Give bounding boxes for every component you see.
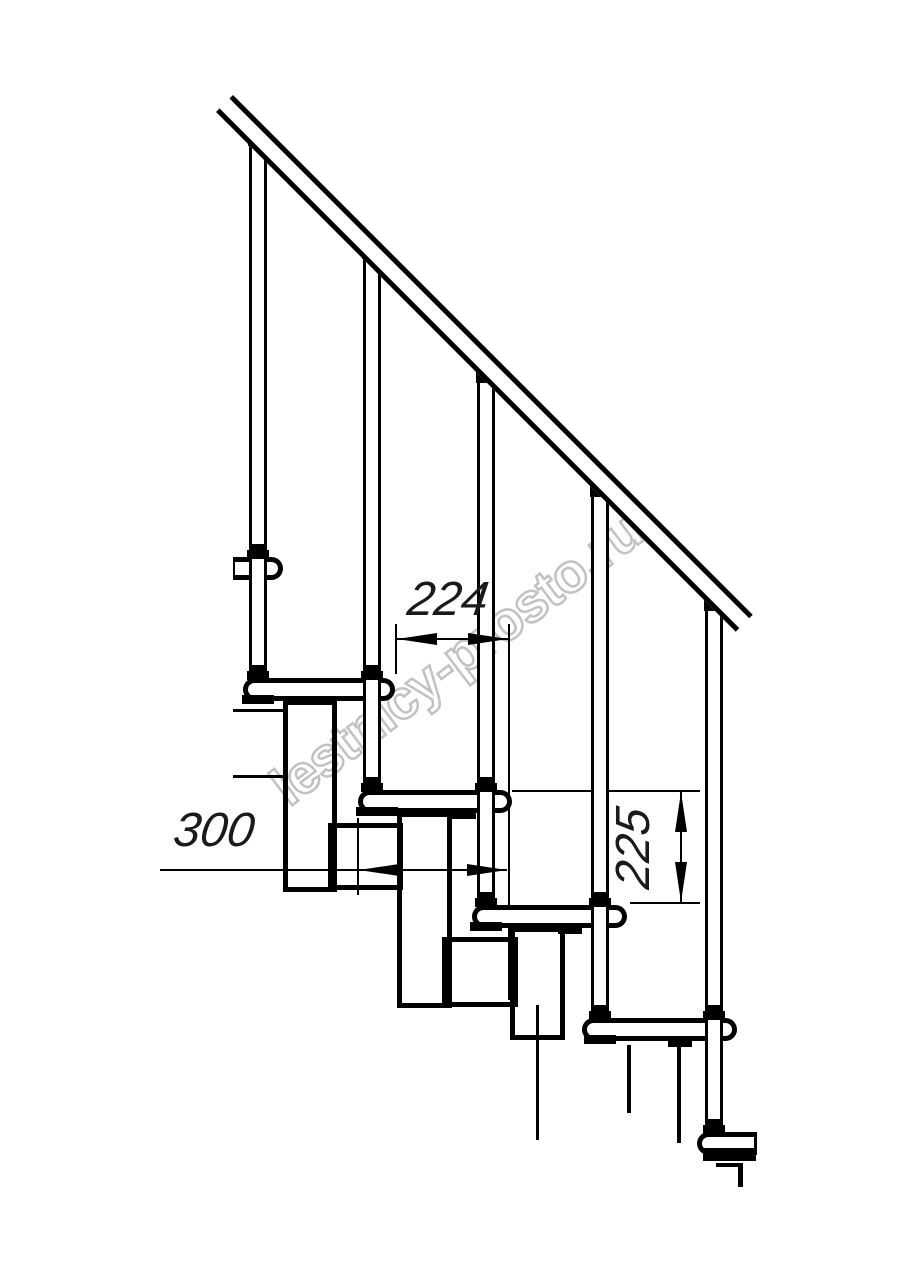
ext-line-300-left: [357, 818, 359, 895]
tread-clamp: [452, 811, 476, 819]
stringer-module-4: [442, 937, 518, 1007]
ext-line-225-bottom: [630, 902, 700, 904]
tread-clamp: [584, 1035, 616, 1044]
baluster-flange: [361, 783, 383, 792]
tread-clamp: [558, 926, 582, 934]
baluster-5: [705, 605, 723, 1132]
dim-arrow-left: [359, 864, 399, 876]
dimension-tread-depth: 300: [165, 807, 264, 855]
cut-edge-line: [233, 709, 285, 712]
staircase-drawing: lestnicy-prosto.ru: [0, 0, 914, 1280]
dimension-step-rise: 225: [606, 794, 662, 902]
stringer-module-2: [328, 823, 403, 890]
dim-arrow-right: [468, 633, 508, 645]
dim-arrow-up: [675, 792, 687, 832]
module-break-line: [627, 1045, 631, 1113]
tread-clamp: [703, 1148, 756, 1161]
module-break-line: [536, 1005, 539, 1140]
baluster-flange: [589, 1011, 611, 1020]
ext-line-224-left: [395, 624, 397, 674]
baluster-2: [363, 253, 381, 790]
baluster-1: [249, 140, 267, 678]
tread-clamp: [242, 695, 274, 704]
baluster-flange: [589, 898, 611, 907]
cut-edge-line: [233, 775, 285, 778]
tread-clamp: [356, 807, 398, 816]
floor-step-line: [738, 1163, 743, 1187]
baluster-flange: [703, 1125, 725, 1134]
baluster-flange: [703, 1011, 725, 1020]
tread-clamp: [668, 1039, 692, 1047]
baluster-4: [591, 491, 609, 1018]
dim-arrow-left: [397, 633, 437, 645]
dim-line-300: [160, 869, 507, 871]
baluster-flange: [247, 550, 269, 559]
dim-arrow-down: [675, 862, 687, 902]
tread-clamp: [470, 922, 502, 931]
dimension-step-run: 224: [399, 576, 498, 624]
baluster-flange: [475, 898, 497, 907]
baluster-flange: [361, 671, 383, 680]
module-break-line: [677, 1045, 681, 1143]
baluster-flange: [247, 671, 269, 680]
dim-arrow-right: [467, 864, 507, 876]
ext-line-224-right: [508, 624, 510, 1000]
baluster-flange: [475, 783, 497, 792]
